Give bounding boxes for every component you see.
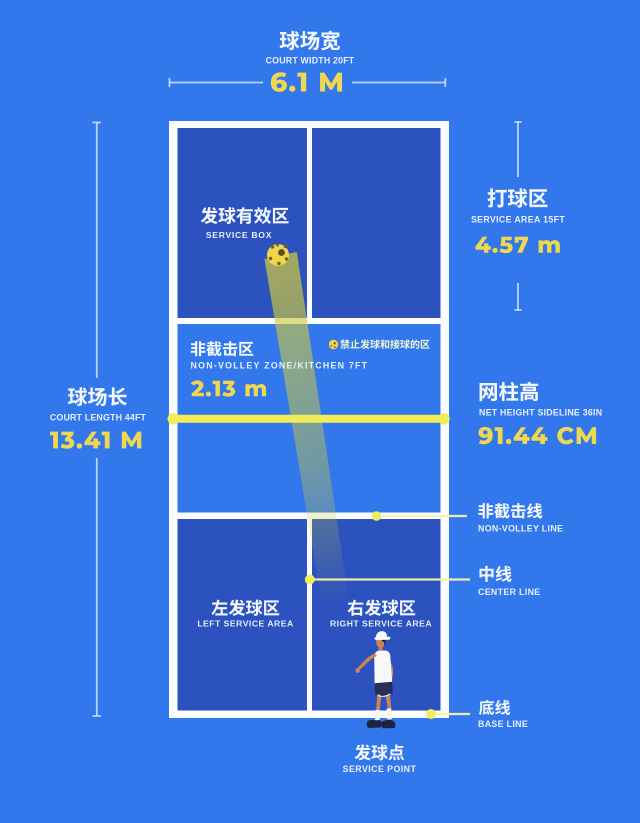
svg-text:SERVICE BOX: SERVICE BOX xyxy=(206,230,272,240)
svg-text:CENTER LINE: CENTER LINE xyxy=(478,587,541,597)
svg-text:NET HEIGHT SIDELINE 36IN: NET HEIGHT SIDELINE 36IN xyxy=(479,407,602,417)
svg-text:SERVICE POINT: SERVICE POINT xyxy=(343,764,417,774)
svg-text:LEFT SERVICE AREA: LEFT SERVICE AREA xyxy=(197,618,293,628)
svg-text:RIGHT SERVICE AREA: RIGHT SERVICE AREA xyxy=(330,618,432,628)
svg-text:COURT WIDTH 20FT: COURT WIDTH 20FT xyxy=(266,56,355,66)
svg-text:BASE LINE: BASE LINE xyxy=(478,719,528,729)
svg-text:NON-VOLLEY ZONE/KITCHEN 7FT: NON-VOLLEY ZONE/KITCHEN 7FT xyxy=(191,360,369,370)
svg-text:SERVICE AREA 15FT: SERVICE AREA 15FT xyxy=(471,215,565,225)
svg-text:COURT LENGTH 44FT: COURT LENGTH 44FT xyxy=(50,413,147,423)
svg-text:NON-VOLLEY LINE: NON-VOLLEY LINE xyxy=(478,523,563,533)
